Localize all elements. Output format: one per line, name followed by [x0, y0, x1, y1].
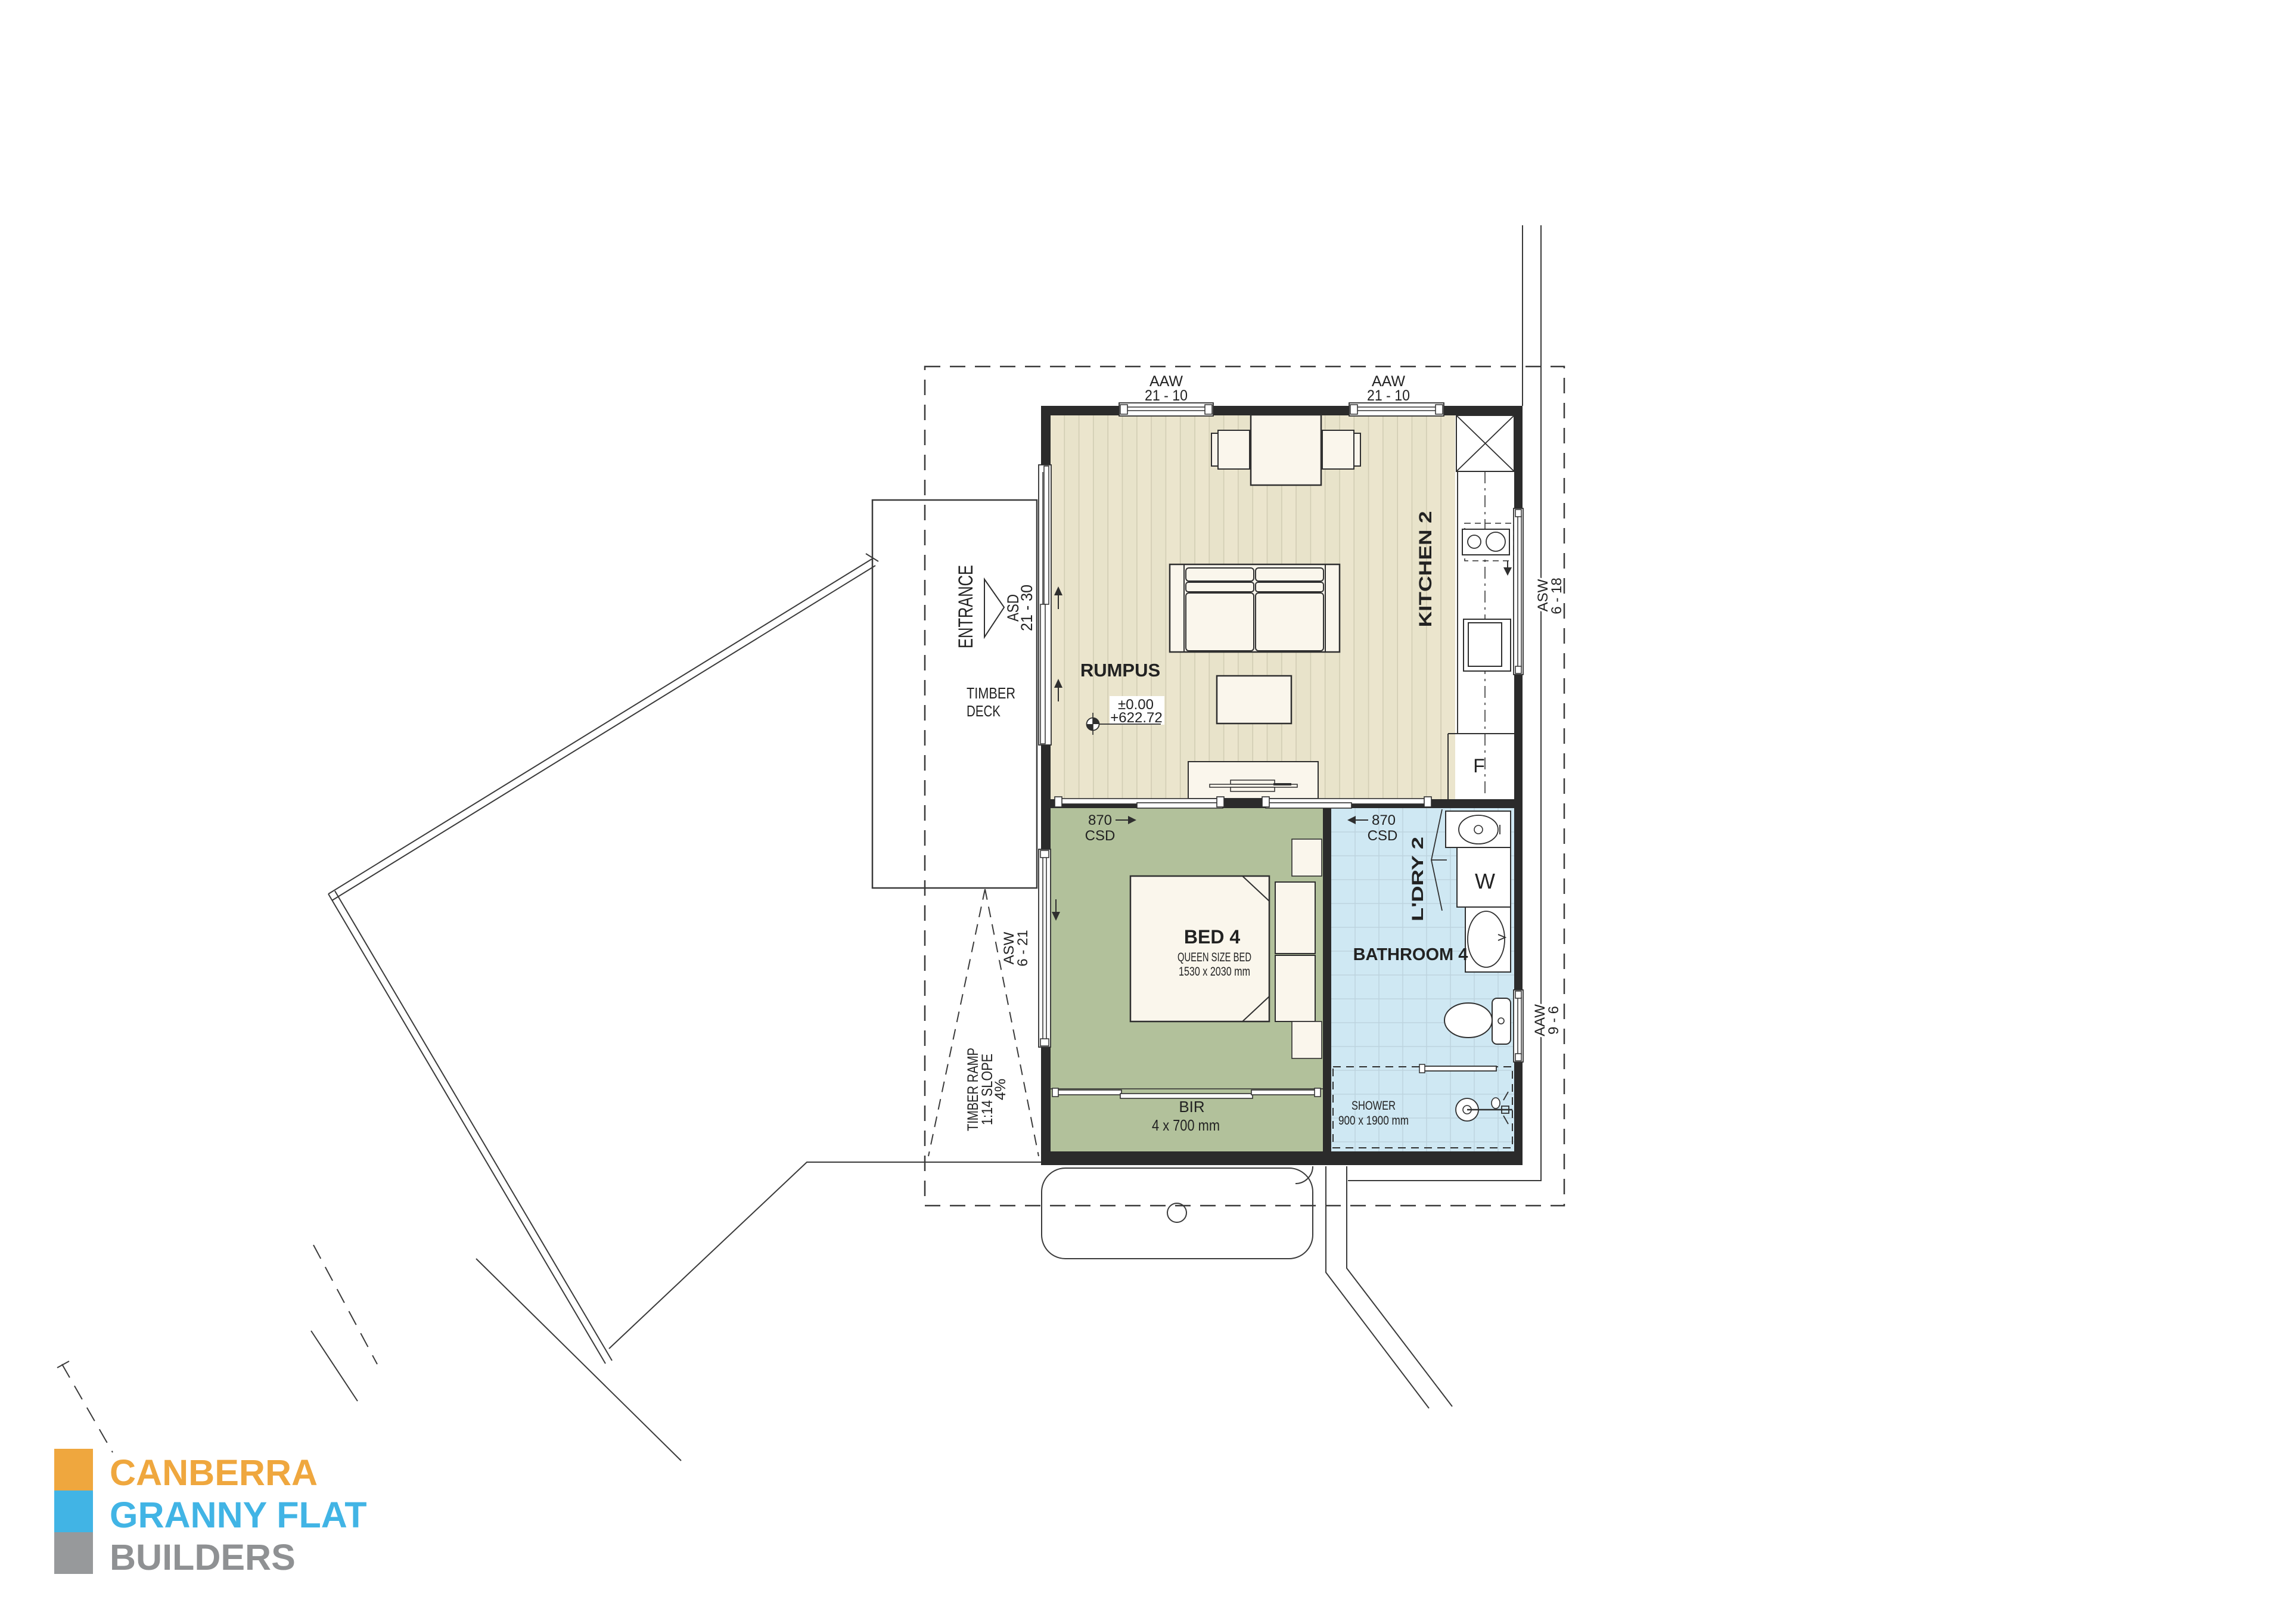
- svg-text:21 - 30: 21 - 30: [1018, 585, 1036, 631]
- svg-text:+622.72: +622.72: [1110, 710, 1162, 726]
- svg-text:F: F: [1473, 755, 1485, 777]
- svg-text:CANBERRA: CANBERRA: [110, 1452, 318, 1493]
- svg-text:870: 870: [1088, 812, 1112, 828]
- svg-text:ENTRANCE: ENTRANCE: [955, 565, 977, 648]
- svg-text:L'DRY 2: L'DRY 2: [1409, 837, 1427, 921]
- svg-text:W: W: [1475, 869, 1495, 893]
- svg-text:QUEEN SIZE BED: QUEEN SIZE BED: [1177, 951, 1251, 964]
- svg-text:6 - 18: 6 - 18: [1549, 577, 1565, 614]
- svg-text:BIR: BIR: [1179, 1098, 1204, 1116]
- svg-text:KITCHEN 2: KITCHEN 2: [1416, 511, 1436, 628]
- svg-text:BED 4: BED 4: [1184, 926, 1240, 948]
- svg-text:870: 870: [1372, 812, 1396, 828]
- svg-text:TIMBER: TIMBER: [967, 684, 1015, 702]
- svg-text:CSD: CSD: [1085, 828, 1116, 844]
- svg-text:GRANNY FLAT: GRANNY FLAT: [110, 1495, 367, 1535]
- svg-text:SHOWER: SHOWER: [1351, 1099, 1396, 1113]
- svg-text:6 - 21: 6 - 21: [1015, 930, 1031, 966]
- svg-text:BUILDERS: BUILDERS: [110, 1537, 296, 1578]
- svg-text:9 - 6: 9 - 6: [1546, 1006, 1562, 1035]
- svg-text:DECK: DECK: [967, 702, 1001, 720]
- svg-text:21 - 10: 21 - 10: [1367, 387, 1410, 404]
- svg-text:BATHROOM 4: BATHROOM 4: [1353, 945, 1468, 964]
- svg-text:4%: 4%: [992, 1079, 1009, 1100]
- svg-text:CSD: CSD: [1368, 828, 1398, 844]
- svg-text:900 x 1900 mm: 900 x 1900 mm: [1338, 1114, 1409, 1128]
- svg-text:21 - 10: 21 - 10: [1145, 387, 1188, 404]
- svg-text:4 x 700 mm: 4 x 700 mm: [1152, 1116, 1220, 1134]
- svg-text:RUMPUS: RUMPUS: [1080, 660, 1160, 681]
- svg-text:1530 x 2030 mm: 1530 x 2030 mm: [1179, 965, 1250, 979]
